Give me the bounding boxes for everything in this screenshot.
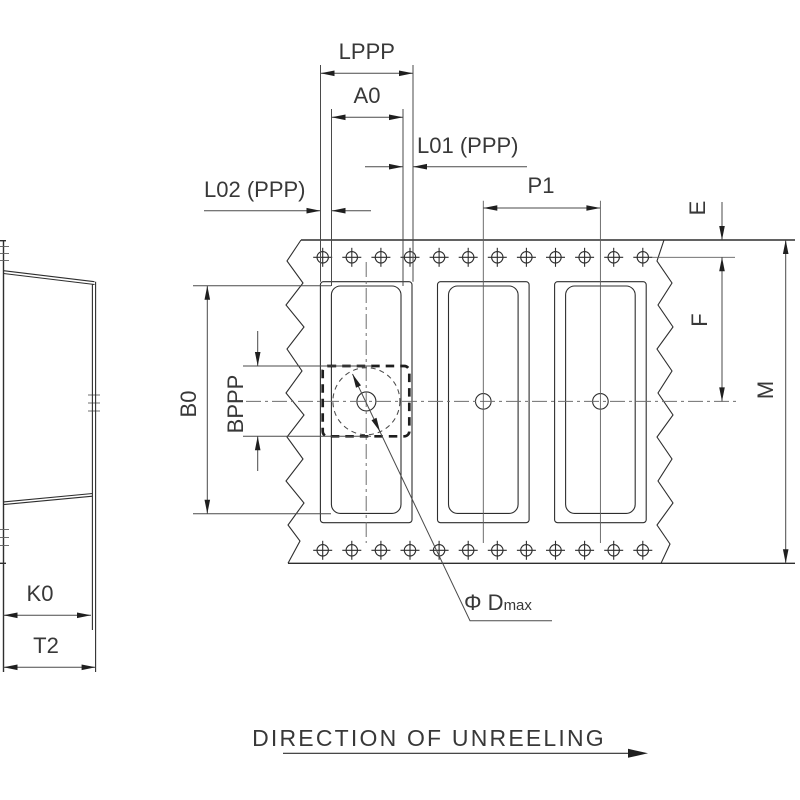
t2-label: T2 xyxy=(33,633,59,658)
dimension-f: F xyxy=(687,257,725,401)
t2-arrow-right xyxy=(82,665,96,671)
m-label: M xyxy=(753,381,778,399)
bppp-label: BPPP xyxy=(223,375,248,434)
side-view: K0 T2 xyxy=(0,240,100,672)
sprocket-holes-bottom xyxy=(313,541,652,560)
l01-label: L01 (PPP) xyxy=(417,133,519,158)
pocket-profile xyxy=(4,271,96,672)
dimension-t2: T2 xyxy=(4,633,96,670)
footer: DIRECTION OF UNREELING xyxy=(252,725,648,758)
k0-arrow-left xyxy=(4,613,18,619)
dimension-p1: P1 xyxy=(483,173,600,211)
dimension-k0: K0 xyxy=(4,581,92,618)
a0-label: A0 xyxy=(354,83,381,108)
dmax-label-sub: max xyxy=(504,597,533,614)
k0-label: K0 xyxy=(27,581,54,606)
dmax-label-main: Φ D xyxy=(464,590,504,615)
left-dimensions: B0 BPPP xyxy=(176,286,371,514)
tape-top-view xyxy=(246,201,795,564)
dimension-l02: L02 (PPP) xyxy=(204,177,371,214)
dimension-l01: L01 (PPP) xyxy=(365,133,527,170)
dmax-label: Φ Dmax xyxy=(464,590,532,615)
dmax-arrow-lower xyxy=(372,418,381,432)
technical-drawing: K0 T2 xyxy=(0,0,800,800)
f-label: F xyxy=(687,313,712,326)
k0-arrow-right xyxy=(77,613,91,619)
dimension-b0: B0 xyxy=(176,286,331,514)
dmax-callout: Φ Dmax xyxy=(353,374,553,621)
dmax-arrow-upper xyxy=(353,374,362,388)
l02-label: L02 (PPP) xyxy=(204,177,306,202)
dimension-m: M xyxy=(753,240,789,563)
dimension-lppp: LPPP xyxy=(321,39,414,76)
direction-of-unreeling-label: DIRECTION OF UNREELING xyxy=(252,725,606,751)
sprocket-holes-top xyxy=(313,248,652,267)
e-label: E xyxy=(685,201,710,216)
p1-label: P1 xyxy=(528,173,555,198)
unreeling-arrow-head xyxy=(628,749,648,758)
dimension-a0: A0 xyxy=(332,83,404,120)
t2-arrow-left xyxy=(4,665,18,671)
right-dimensions: E F M xyxy=(652,201,789,564)
top-dimensions: LPPP A0 L01 (PPP) L02 (PPP) P1 xyxy=(204,39,600,286)
lppp-label: LPPP xyxy=(339,39,395,64)
dimension-e: E xyxy=(685,201,725,240)
b0-label: B0 xyxy=(176,391,201,418)
